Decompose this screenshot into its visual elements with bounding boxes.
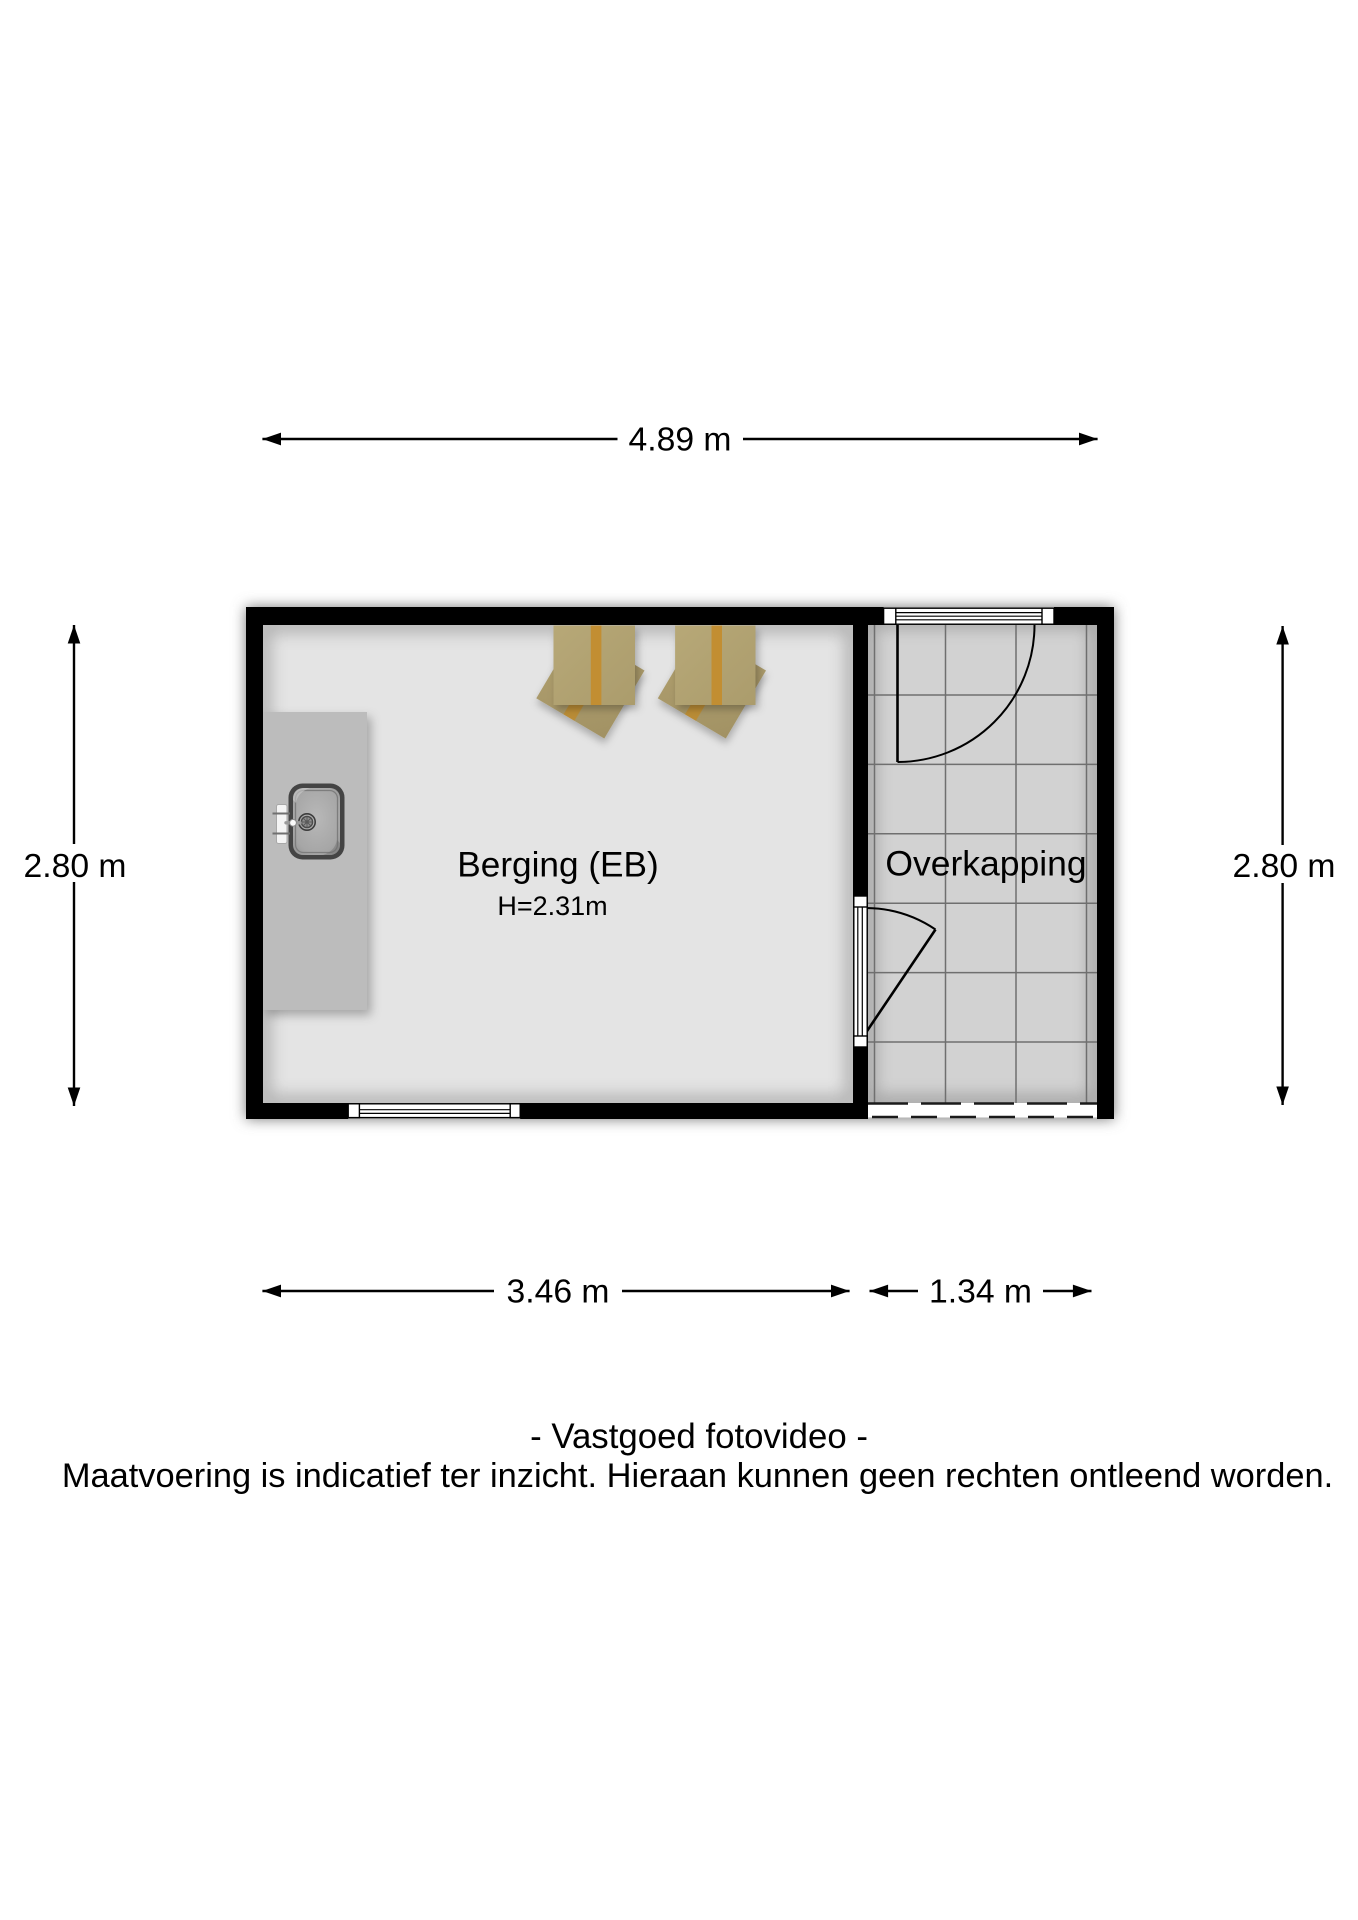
svg-text:1.34 m: 1.34 m <box>929 1273 1032 1311</box>
svg-text:- Vastgoed fotovideo -: - Vastgoed fotovideo - <box>530 1417 868 1456</box>
svg-text:2.80 m: 2.80 m <box>24 847 127 885</box>
svg-text:H=2.31m: H=2.31m <box>497 891 607 921</box>
svg-text:Berging (EB): Berging (EB) <box>457 846 658 885</box>
svg-text:2.80 m: 2.80 m <box>1233 847 1336 885</box>
svg-text:4.89 m: 4.89 m <box>629 421 732 459</box>
svg-text:Overkapping: Overkapping <box>885 844 1086 884</box>
svg-text:3.46 m: 3.46 m <box>507 1273 610 1311</box>
svg-text:Maatvoering is indicatief ter: Maatvoering is indicatief ter inzicht. H… <box>62 1457 1333 1495</box>
